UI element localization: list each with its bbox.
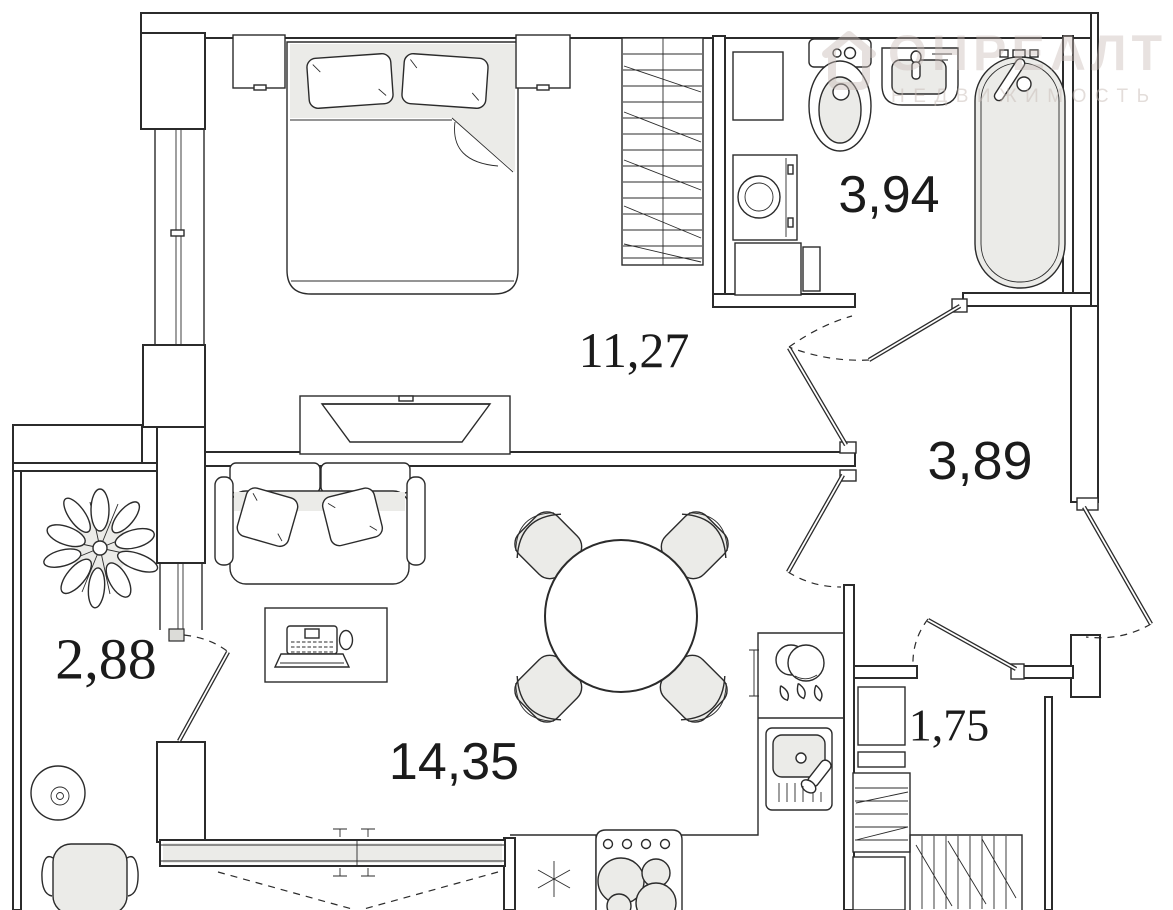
bedroom-window (155, 129, 204, 345)
sofa (215, 463, 425, 584)
mouse (340, 631, 353, 650)
bathtub (975, 50, 1065, 288)
room-label-bedroom: 11,27 (579, 321, 690, 379)
bedroom-door-hinge (840, 442, 856, 453)
kitchen-sink (766, 728, 835, 810)
bathroom-cabinet-low (735, 243, 820, 295)
bathroom-sink (882, 48, 958, 105)
dining-set (504, 501, 740, 734)
balcony-plant (42, 489, 160, 608)
room-label-storage: 1,75 (909, 699, 990, 752)
balcony-door-glazing (160, 563, 202, 630)
nightstand-right (516, 35, 570, 90)
stove (596, 830, 682, 910)
kitchen-hob-unit (776, 645, 824, 702)
entrance-door-hinge (1077, 498, 1098, 510)
kitchen-base-cabinet (538, 835, 596, 910)
storage-cabinets (853, 687, 910, 910)
room-label-balcony: 2,88 (55, 626, 157, 693)
toilet (809, 39, 871, 151)
storage-shelves (853, 773, 910, 852)
balcony-door-hinge (169, 629, 184, 641)
washing-machine (733, 155, 797, 240)
balcony-chair (42, 844, 138, 910)
wardrobe-closet (622, 38, 703, 265)
bathroom-cabinet (733, 52, 783, 120)
floor-plan: ОНРЕАЛТ НЕДВИЖИМОСТЬ 11,27 3,94 3,89 2,8… (0, 0, 1173, 910)
nightstand-left (233, 35, 285, 90)
vent-asterisk (538, 861, 570, 897)
tv-console (300, 396, 510, 454)
desk (265, 608, 387, 682)
room-label-bathroom: 3,94 (838, 165, 939, 225)
room-label-living-kitchen: 14,35 (389, 732, 519, 792)
storage-wardrobe (910, 835, 1022, 910)
balcony-table (31, 766, 85, 820)
room-label-hallway: 3,89 (927, 430, 1032, 492)
living-room-window (160, 829, 505, 909)
dining-table (545, 540, 697, 692)
